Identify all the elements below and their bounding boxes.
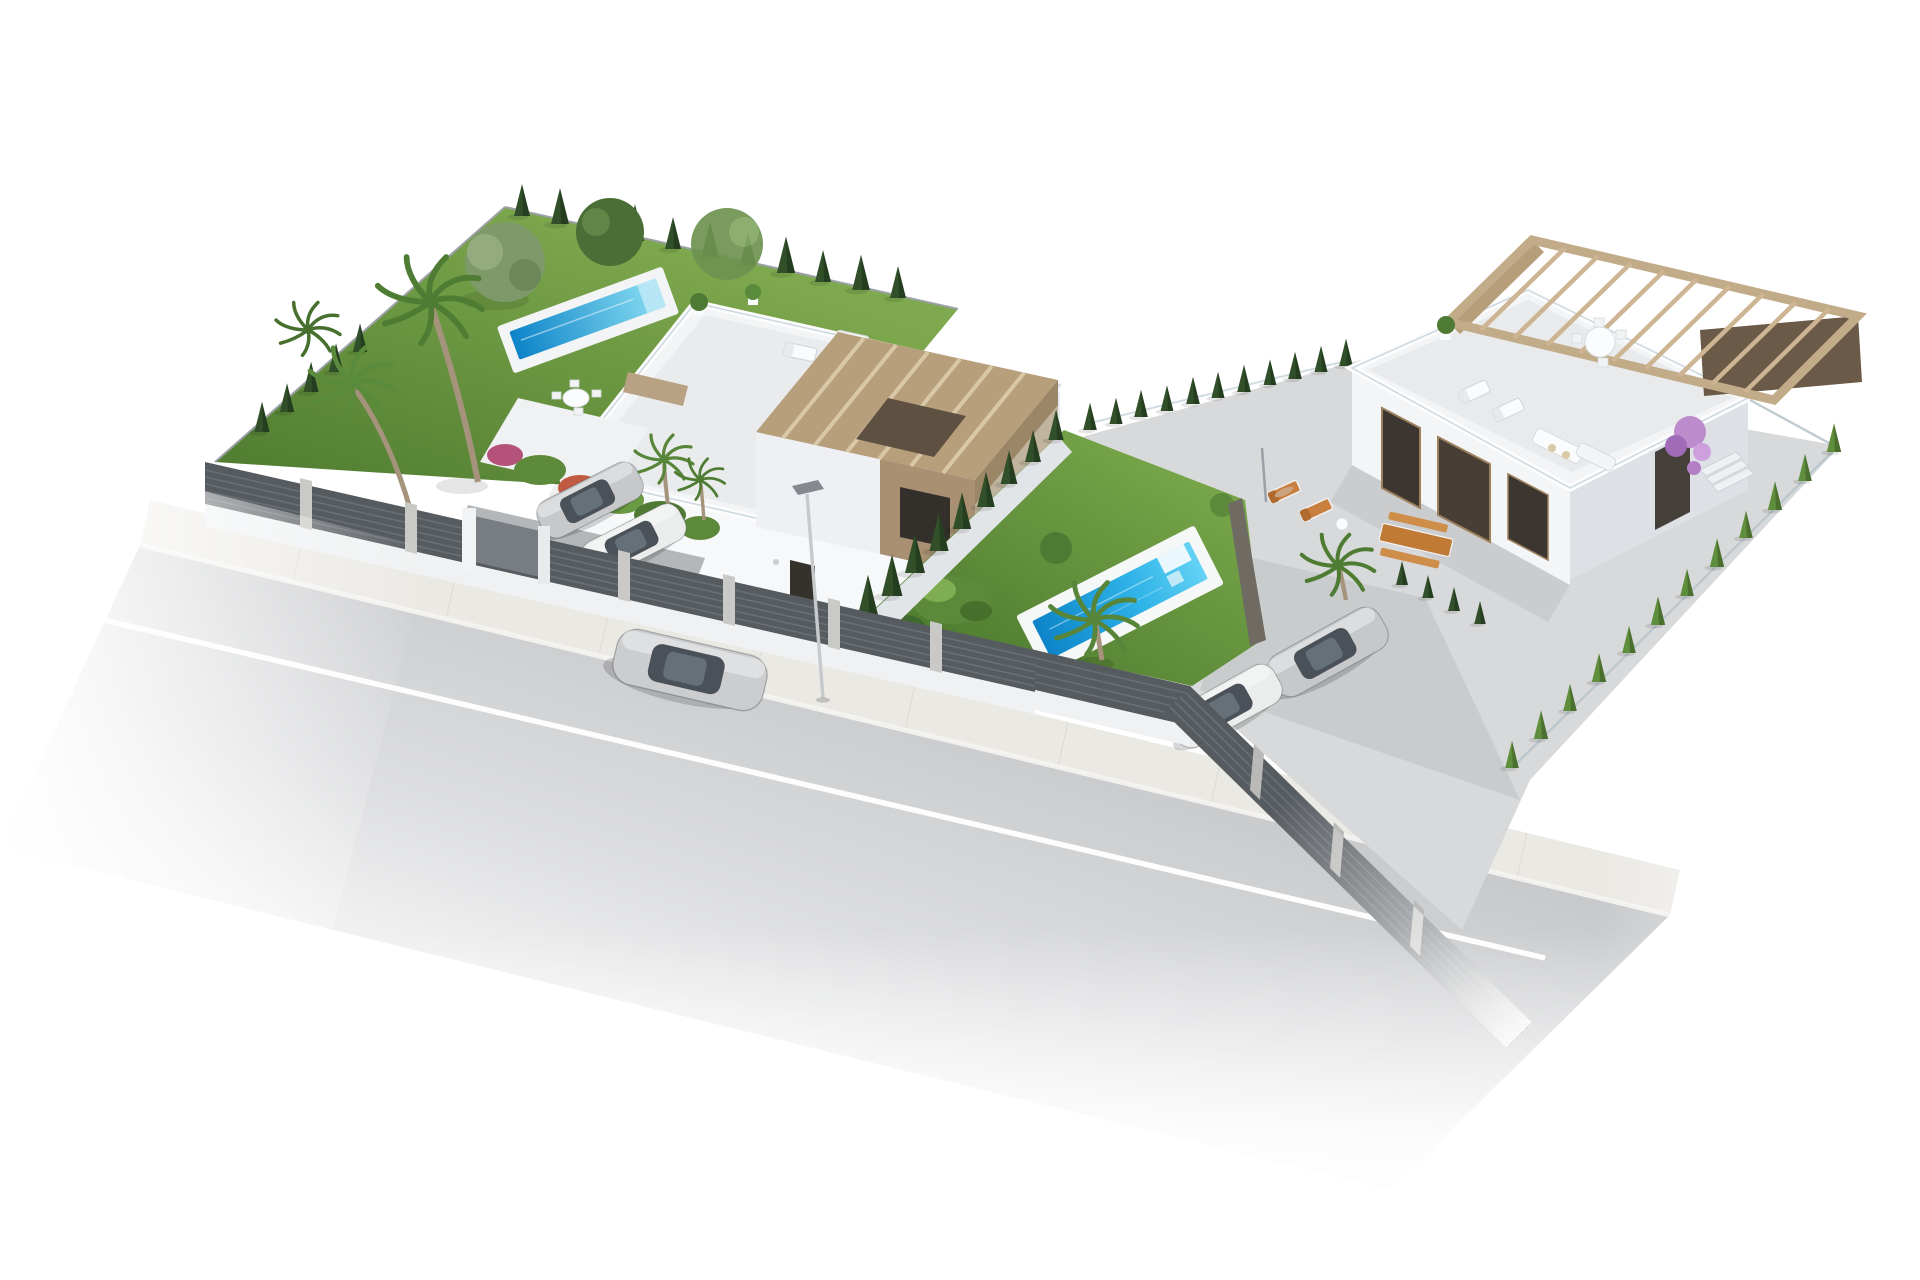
garden-tree-light	[691, 208, 763, 280]
cypress-tree	[1283, 352, 1302, 383]
cypress-tree	[1078, 403, 1097, 434]
wall-lamp	[773, 559, 779, 565]
cypress-tree	[1259, 359, 1277, 388]
garden-tree	[576, 198, 644, 266]
cypress-tree	[1181, 377, 1200, 408]
cypress-tree	[1334, 339, 1353, 370]
cypress-tree	[1207, 372, 1225, 402]
villa-aerial-render	[0, 0, 1920, 1280]
cypress-tree	[1129, 390, 1148, 421]
cypress-tree	[1310, 346, 1328, 376]
fade-right	[1600, 780, 1920, 1280]
palm-tree	[276, 303, 340, 356]
side-table	[1336, 518, 1348, 530]
cypress-tree	[1105, 398, 1123, 428]
cypress-tree	[1156, 385, 1174, 414]
render-canvas	[0, 0, 1920, 1280]
cypress-tree	[1232, 365, 1251, 396]
